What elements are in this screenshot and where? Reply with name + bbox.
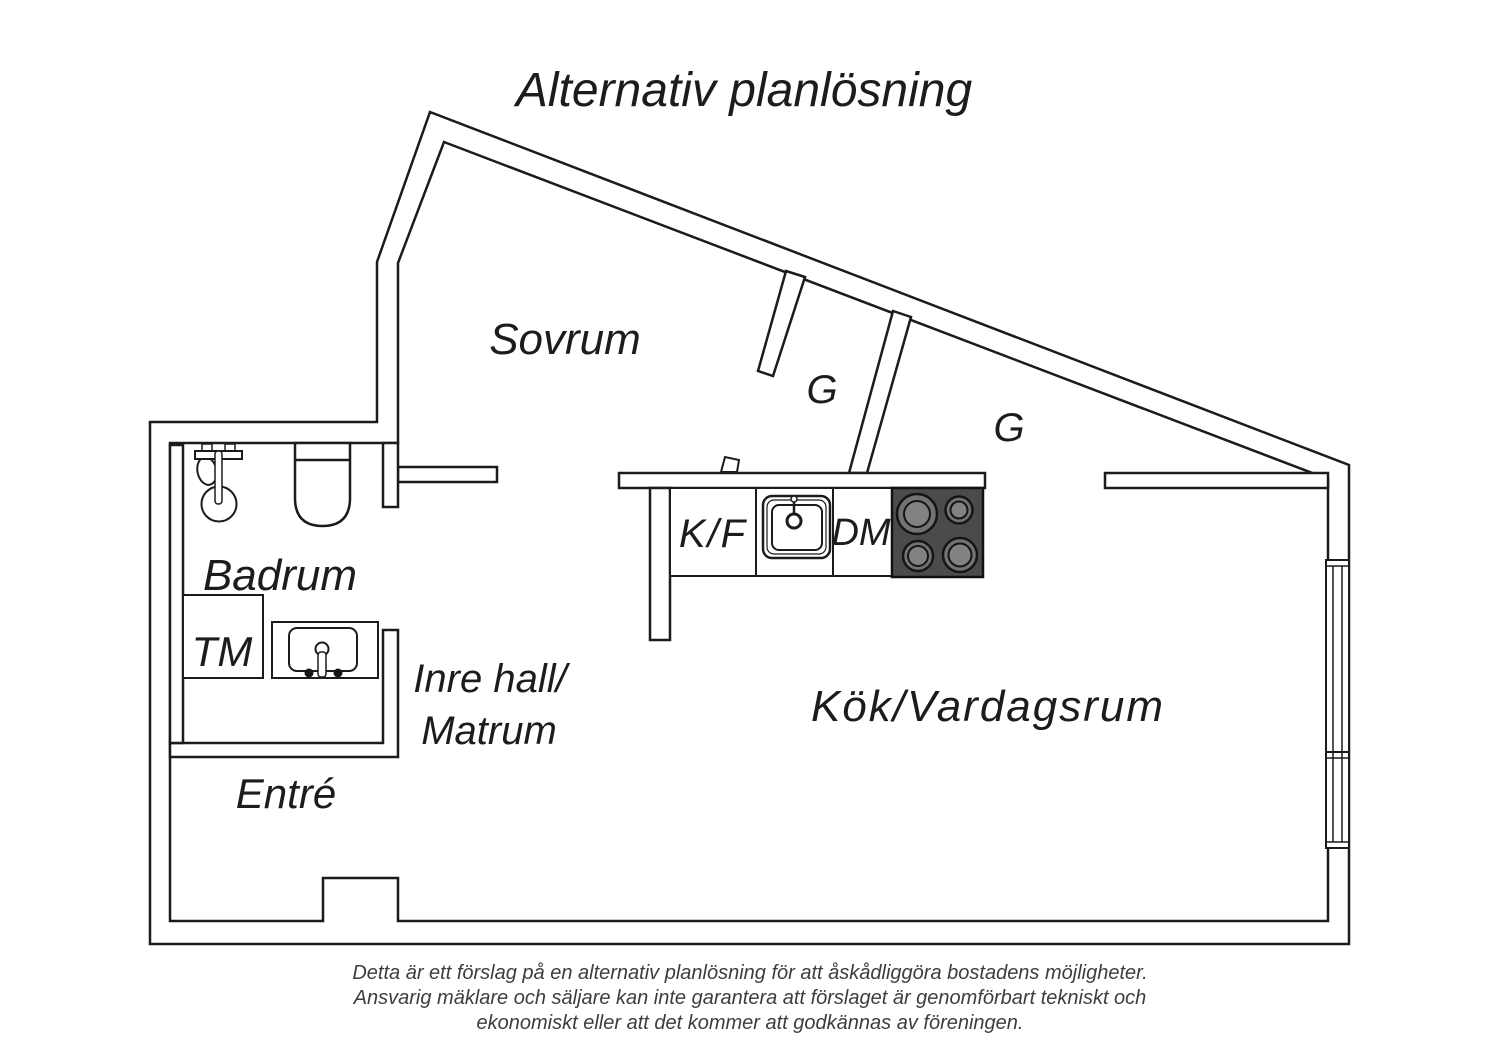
room-label-entre: Entré [236,770,336,817]
wall-bathroom-left-lining [170,445,183,743]
kitchen-sink [763,496,830,558]
wall-kitchen-vertical [650,488,670,640]
stove [892,488,983,577]
floorplan-svg: Alternativ planlösning Sovrum G G Badrum… [0,0,1500,1060]
appliance-label-dm: DM [831,512,890,554]
wall-closet-closet [849,311,911,473]
disclaimer-line-3: ekonomiskt eller att det kommer att godk… [477,1012,1024,1034]
window [1326,560,1349,848]
toilet [295,443,350,526]
faucet-handle-right [334,669,343,678]
wall-kitchen-left-segment [619,473,985,488]
disclaimer-line-2: Ansvarig mäklare och säljare kan inte ga… [353,987,1147,1009]
room-label-closet-1: G [806,368,837,412]
wall-kitchen-right-segment [1105,473,1328,488]
appliance-label-tm: TM [192,628,253,675]
room-label-badrum: Badrum [203,551,357,600]
pedestal-sink [195,444,242,522]
faucet-handle-left [305,669,314,678]
burner-bottom-right [943,538,977,572]
door-notch [721,457,739,472]
page-title: Alternativ planlösning [513,64,973,117]
room-label-closet-2: G [993,406,1024,450]
disclaimer-line-1: Detta är ett förslag på en alternativ pl… [352,962,1147,984]
room-label-inre-hall-line2: Matrum [421,709,557,753]
burner-bottom-left [903,541,933,571]
room-label-sovrum: Sovrum [489,315,641,364]
wall-sovrum-closet [758,271,805,376]
burner-top-right [946,497,973,524]
burner-top-left [897,494,937,534]
floorplan-canvas: Alternativ planlösning Sovrum G G Badrum… [0,0,1500,1060]
wall-sovrum-stub [398,467,497,482]
appliance-label-kf: K/F [679,512,748,556]
disclaimer: Detta är ett förslag på en alternativ pl… [352,962,1147,1034]
room-label-kok-vardagsrum: Kök/Vardagsrum [811,682,1165,731]
vanity-sink [272,622,378,678]
room-label-inre-hall-line1: Inre hall/ [413,657,570,701]
wall-bathroom-right-upper [383,443,398,507]
